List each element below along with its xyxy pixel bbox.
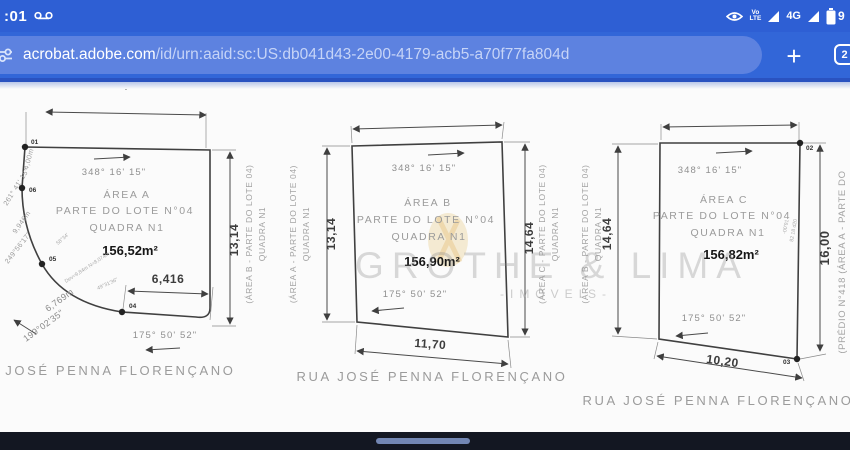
watermark-subtitle: -IMÓVEIS- bbox=[500, 286, 612, 301]
side-label: QUADRA N1 bbox=[257, 207, 267, 262]
voicemail-icon bbox=[34, 11, 53, 21]
signal-icon-2 bbox=[808, 11, 819, 22]
plot-b-quadra: QUADRA N1 bbox=[391, 231, 466, 243]
pdf-page[interactable]: 10,40 13,14 6,416 348° 16' 15" 175° 50' … bbox=[0, 82, 850, 432]
plot-c-title: ÁREA C bbox=[700, 193, 748, 206]
street-name: RUA JOSÉ PENNA FLORENÇANO bbox=[297, 369, 568, 384]
eye-icon bbox=[726, 11, 743, 22]
street-name: RUA JOSÉ PENNA FLORENÇANO bbox=[0, 363, 235, 378]
plot-c-quadra: QUADRA N1 bbox=[690, 227, 765, 239]
url-domain: acrobat.adobe.com bbox=[23, 46, 156, 64]
status-bar: :01 Vo LTE 4G 9 bbox=[0, 0, 850, 32]
url-path: /id/urn:aaid:sc:US:db041d43-2e00-4179-ac… bbox=[156, 46, 570, 64]
point-label: 02 bbox=[806, 145, 814, 152]
curve-annotation: 49°31'36" bbox=[96, 277, 119, 292]
battery-percent: 9 bbox=[838, 9, 850, 23]
point-label: 01 bbox=[31, 139, 39, 146]
network-type-badge: 4G bbox=[786, 10, 801, 22]
plot-b-lot: PARTE DO LOTE N°04 bbox=[357, 214, 495, 226]
side-label: (ÁREA A - PARTE DO LOTE 04) bbox=[288, 165, 298, 303]
curve-annotation: Dev=9,84m N=8,074m bbox=[64, 251, 111, 284]
dim-bottom-c: 10,20 bbox=[705, 352, 739, 370]
plot-area-a: 10,40 13,14 6,416 348° 16' 15" 175° 50' … bbox=[0, 82, 241, 378]
right-edge-label: (PRÉDIO N°418 (ÁREA A - PARTE DO bbox=[837, 170, 848, 353]
watermark-title: GROTHE & LIMA bbox=[355, 245, 749, 286]
dim-bottom-a: 6,416 bbox=[152, 272, 185, 286]
dim-left-b: 13,14 bbox=[324, 218, 338, 251]
side-labels-gap-ab: (ÁREA B - PARTE DO LOTE 04) QUADRA N1 (Á… bbox=[244, 164, 311, 303]
bearing-top-b: 348° 16' 15" bbox=[392, 163, 456, 174]
clock: :01 bbox=[4, 8, 27, 25]
curve-annotation: 261° 41' 15" bbox=[2, 167, 31, 207]
battery-icon bbox=[826, 8, 836, 25]
dim-bottom-b: 11,70 bbox=[414, 336, 447, 352]
home-indicator[interactable] bbox=[376, 438, 470, 444]
signal-icon bbox=[768, 11, 779, 22]
bearing-top-a: 348° 16' 15" bbox=[82, 167, 146, 178]
gesture-nav-bar bbox=[0, 432, 850, 450]
curve-annotation: 9,946m bbox=[12, 210, 33, 235]
new-tab-button[interactable]: + bbox=[778, 40, 810, 72]
street-name: RUA JOSÉ PENNA FLORENÇANO bbox=[583, 393, 850, 408]
bearing-bottom-a: 175° 50' 52" bbox=[133, 330, 197, 341]
dim-right-c: 16,00 bbox=[817, 230, 832, 265]
point-label: 06 bbox=[29, 187, 37, 194]
plot-c-lot: PARTE DO LOTE N°04 bbox=[653, 210, 791, 222]
curve-annotation: 58°34' bbox=[55, 232, 70, 246]
survey-drawing: 10,40 13,14 6,416 348° 16' 15" 175° 50' … bbox=[0, 82, 850, 432]
point-label: 04 bbox=[129, 303, 137, 310]
side-label: QUADRA N1 bbox=[301, 207, 311, 262]
point-label: 05 bbox=[49, 256, 57, 263]
curve-annotation: 82 18 d20 bbox=[789, 218, 799, 242]
plot-a-lot: PARTE DO LOTE N°04 bbox=[56, 205, 194, 217]
curve-annotation: -00'91 bbox=[782, 219, 790, 234]
plot-a-quadra: QUADRA N1 bbox=[89, 222, 164, 234]
volte-label-bottom: LTE bbox=[750, 16, 762, 23]
bearing-top-c: 348° 16' 15" bbox=[678, 165, 742, 176]
dim-top-a: 10,40 bbox=[112, 82, 140, 91]
plot-a-title: ÁREA A bbox=[104, 188, 151, 201]
curve-annotation: 199°02'35" bbox=[21, 308, 65, 344]
site-settings-icon bbox=[0, 47, 14, 63]
plot-a-area: 156,52m² bbox=[102, 243, 158, 258]
point-label: 03 bbox=[783, 359, 791, 366]
tab-switcher-button[interactable]: 2 bbox=[834, 44, 850, 65]
curve-annotation: 249°56'17" bbox=[3, 230, 33, 265]
plot-b-title: ÁREA B bbox=[404, 196, 452, 209]
dim-right-a: 13,14 bbox=[227, 224, 241, 257]
browser-toolbar: acrobat.adobe.com/id/urn:aaid:sc:US:db04… bbox=[0, 32, 850, 78]
side-label: (ÁREA B - PARTE DO LOTE 04) bbox=[244, 164, 254, 303]
bearing-bottom-c: 175° 50' 52" bbox=[682, 313, 746, 324]
url-bar[interactable]: acrobat.adobe.com/id/urn:aaid:sc:US:db04… bbox=[0, 36, 762, 74]
bearing-bottom-b: 175° 50' 52" bbox=[383, 289, 447, 300]
volte-icon: Vo LTE bbox=[750, 10, 762, 23]
